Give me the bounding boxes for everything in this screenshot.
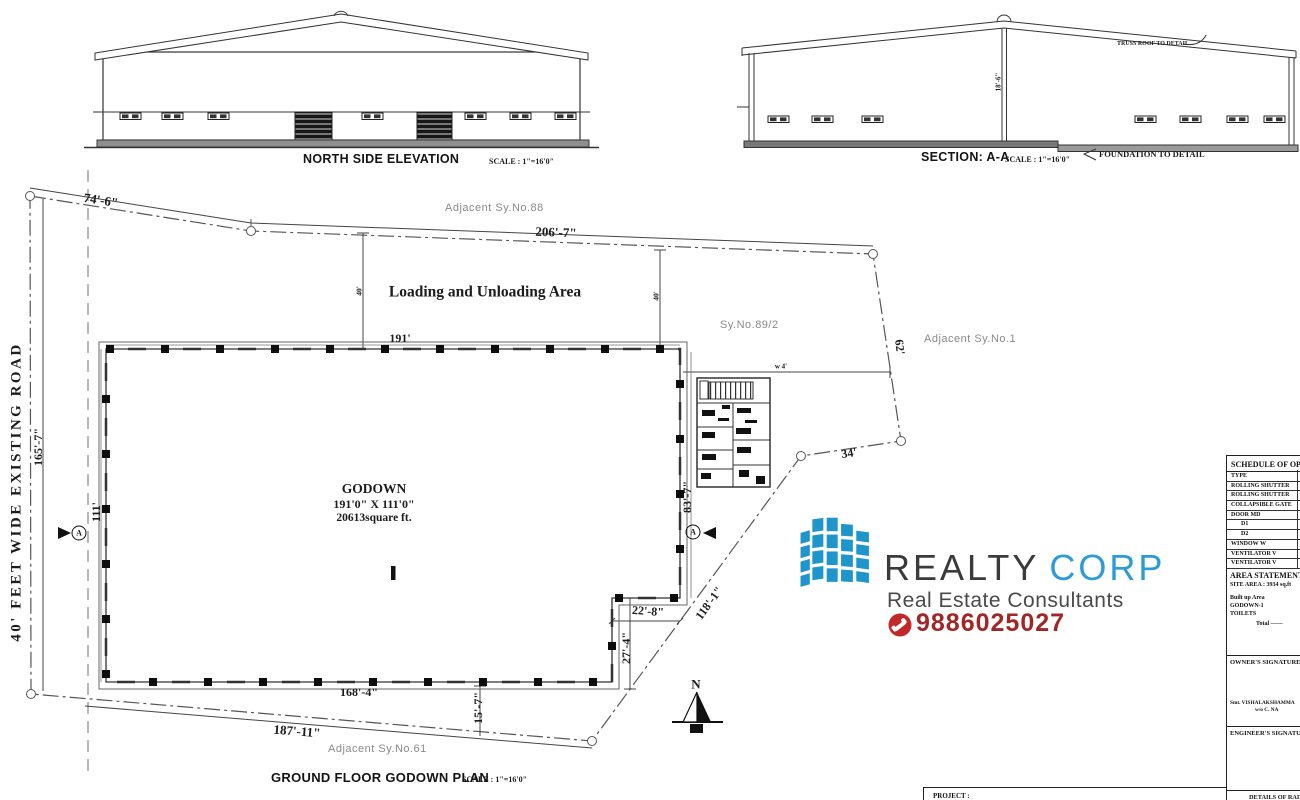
area-row: GODOWN-1	[1230, 603, 1300, 609]
logo-brand-corp: CORP	[1049, 547, 1165, 588]
section-title: SECTION: A-A	[921, 151, 1010, 164]
schedule-row: ROLLING SHUTTER	[1227, 482, 1300, 492]
project-title-block: PROJECT :	[923, 787, 1227, 800]
dim-boundary-west: 165'-7"	[32, 428, 44, 466]
dim-godown-height: 111'	[90, 502, 102, 522]
plan-title: GROUND FLOOR GODOWN PLAN	[271, 771, 489, 784]
owner-signature-block: OWNER'S SIGNATURE : Smt. VISHALAKSHAMMA …	[1227, 656, 1300, 727]
north-letter: N	[691, 678, 700, 691]
area-statement-block: AREA STATEMENT SITE AREA : 3934 sq.ft Bu…	[1227, 569, 1300, 656]
schedule-row: VENTILATOR V	[1227, 550, 1300, 560]
dim-boundary-south: 187'-11"	[273, 723, 321, 740]
north-elevation-title: NORTH SIDE ELEVATION	[303, 153, 459, 166]
adjacent-east-label: Adjacent Sy.No.1	[924, 334, 1016, 345]
dim-step-width: 22'-8"	[632, 604, 665, 618]
section-marker-a-right: A	[686, 525, 701, 540]
engineer-signature-block: ENGINEER'S SIGNATURE	[1227, 727, 1300, 791]
dim-office-note: w 4'	[775, 364, 787, 371]
plan-linework	[0, 0, 1300, 800]
schedule-row: VENTILATOR V	[1227, 559, 1300, 569]
logo-tagline: Real Estate Consultants	[887, 590, 1124, 611]
godown-area: 20613square ft.	[333, 513, 414, 525]
north-elevation-scale: SCALE : 1"=16'0"	[489, 158, 554, 166]
logo-phone-number: 9886025027	[916, 611, 1065, 636]
engineer-signature-label: ENGINEER'S SIGNATURE	[1230, 730, 1300, 737]
truss-note: TRUSS ROOF TO DETAIL	[1117, 41, 1189, 47]
plan-scale: SCALE : 1"=16'0"	[462, 776, 527, 784]
godown-label: GODOWN 191'0" X 111'0" 20613square ft.	[333, 482, 414, 524]
schedule-row: DOOR MD	[1227, 511, 1300, 521]
schedule-row: D2	[1227, 530, 1300, 540]
office-detail	[697, 378, 770, 487]
godown-name: GODOWN	[333, 482, 414, 496]
section-scale: SCALE : 1"=16'0"	[1005, 156, 1070, 164]
dim-boundary-east: 62'	[893, 339, 907, 356]
road-label: 40' FEET WIDE EXISTING ROAD	[10, 342, 25, 642]
owner-signature-label: OWNER'S SIGNATURE :	[1230, 659, 1300, 666]
owner-name-2: w/o C. NA	[1255, 707, 1278, 713]
schedule-title: SCHEDULE OF OPENINGS	[1227, 456, 1300, 472]
loading-area-label: Loading and Unloading Area	[389, 284, 581, 300]
dim-loading-right: 40'	[652, 291, 660, 301]
dim-godown-right: 83'-7"	[681, 481, 693, 513]
dim-loading-left: 40'	[355, 286, 363, 296]
schedule-header: TYPE	[1227, 472, 1300, 482]
dim-boundary-north: 206'-7"	[535, 225, 577, 239]
plan-stamp-mark	[391, 566, 396, 580]
site-area-value: SITE AREA : 3934 sq.ft	[1230, 582, 1300, 588]
area-row: TOILETS	[1230, 611, 1300, 617]
schedule-row: ROLLING SHUTTER	[1227, 491, 1300, 501]
built-up-label: Built up Area	[1230, 595, 1300, 601]
section-marker-arrows	[58, 527, 716, 539]
survey-number-label: Sy.No.89/2	[720, 320, 779, 331]
section-marker-a-left: A	[72, 526, 87, 541]
section-height-dim: 18'-6"	[996, 73, 1003, 92]
schedule-row: COLLAPSIBLE GATE	[1227, 501, 1300, 511]
phone-icon	[888, 613, 912, 637]
dim-setback-south: 15'-7"	[472, 692, 484, 724]
title-block-panel: SCHEDULE OF OPENINGS TYPE ROLLING SHUTTE…	[1226, 455, 1300, 800]
godown-dimensions: 191'0" X 111'0"	[333, 498, 414, 510]
area-statement-title: AREA STATEMENT	[1230, 571, 1300, 580]
adjacent-south-label: Adjacent Sy.No.61	[328, 744, 427, 755]
section-drawing	[737, 15, 1298, 160]
logo-brand: REALTYCORP	[884, 550, 1165, 586]
project-label: PROJECT :	[933, 792, 970, 800]
foundation-note: FOUNDATION TO DETAIL	[1099, 150, 1205, 159]
details-note-block: DETAILS OF RAIN HARVESTING SYSTEM	[1227, 791, 1300, 800]
schedule-row: D1	[1227, 520, 1300, 530]
dim-godown-width: 191'	[389, 332, 410, 344]
schedule-column-divider	[1297, 470, 1298, 568]
dim-boundary-se: 34'	[840, 446, 857, 460]
logo-brand-realty: REALTY	[884, 547, 1039, 588]
area-total: Total ——	[1256, 621, 1300, 627]
schedule-row: WINDOW W	[1227, 540, 1300, 550]
drawing-sheet: NORTH SIDE ELEVATION SCALE : 1"=16'0" SE…	[0, 0, 1300, 800]
north-elevation-drawing	[84, 11, 599, 147]
realty-corp-logo-icon	[800, 516, 872, 592]
dim-step-height: 27'-4"	[620, 632, 632, 664]
adjacent-north-label: Adjacent Sy.No.88	[445, 203, 544, 214]
north-arrow-icon	[672, 692, 723, 733]
dim-godown-south: 168'-4"	[340, 686, 378, 698]
owner-name: Smt. VISHALAKSHAMMA	[1230, 700, 1295, 706]
details-line-1: DETAILS OF RAIN	[1249, 794, 1300, 800]
